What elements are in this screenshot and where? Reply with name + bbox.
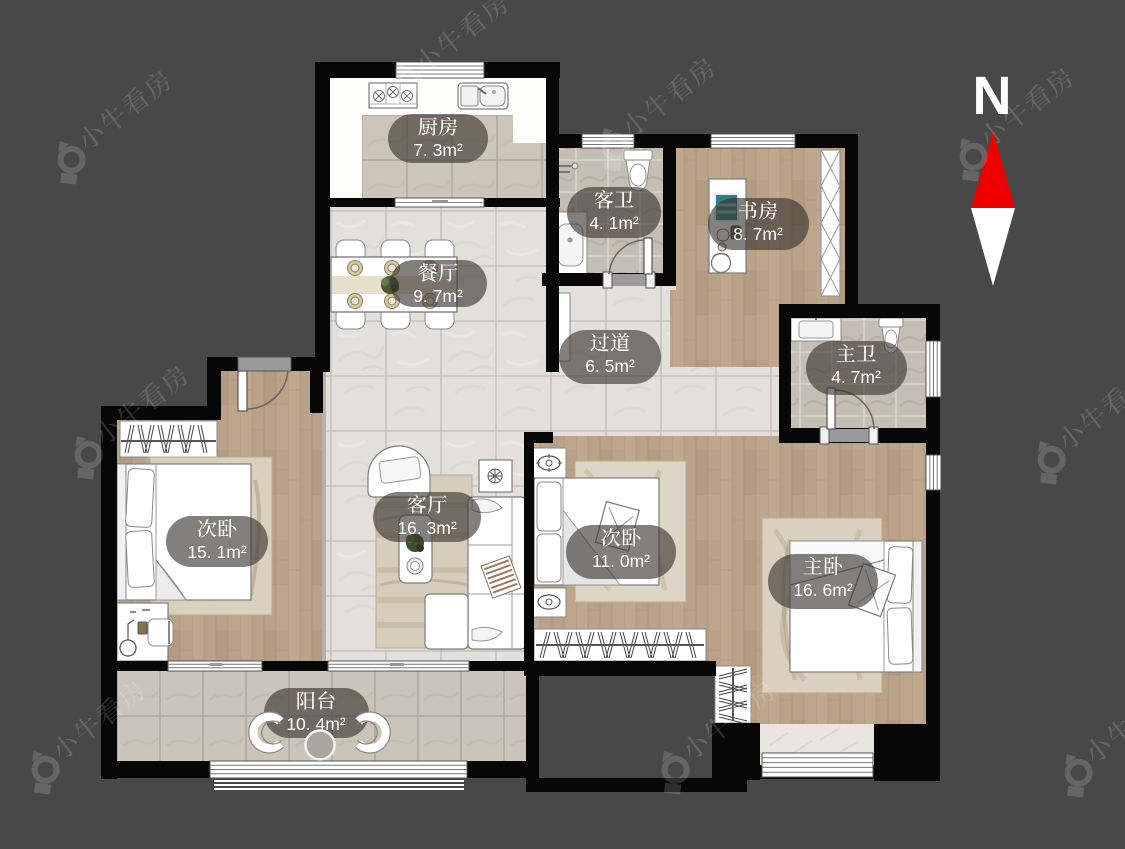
- svg-text:9. 7m²: 9. 7m²: [413, 286, 463, 306]
- svg-text:6. 5m²: 6. 5m²: [585, 356, 635, 376]
- svg-text:8. 7m²: 8. 7m²: [733, 224, 783, 244]
- svg-text:15. 1m²: 15. 1m²: [187, 542, 246, 562]
- svg-text:11. 0m²: 11. 0m²: [592, 551, 650, 571]
- svg-text:16. 3m²: 16. 3m²: [397, 518, 456, 538]
- svg-text:16. 6m²: 16. 6m²: [793, 580, 852, 600]
- svg-text:4. 1m²: 4. 1m²: [589, 213, 639, 233]
- svg-text:7. 3m²: 7. 3m²: [413, 140, 463, 160]
- svg-text:4. 7m²: 4. 7m²: [831, 367, 881, 387]
